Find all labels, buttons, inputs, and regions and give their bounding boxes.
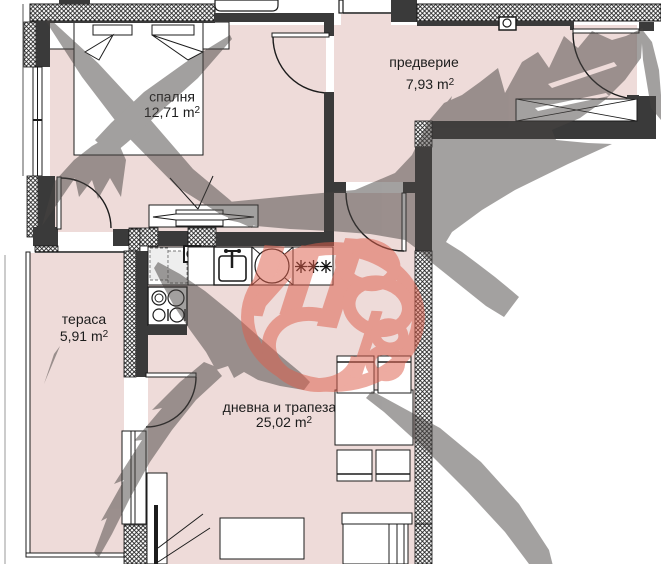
svg-text:7,93 m2: 7,93 m2: [406, 76, 455, 92]
svg-text:тераса: тераса: [62, 311, 107, 327]
svg-text:предверие: предверие: [389, 54, 459, 70]
svg-text:5,91 m2: 5,91 m2: [60, 328, 109, 344]
svg-text:25,02 m2: 25,02 m2: [256, 414, 313, 430]
